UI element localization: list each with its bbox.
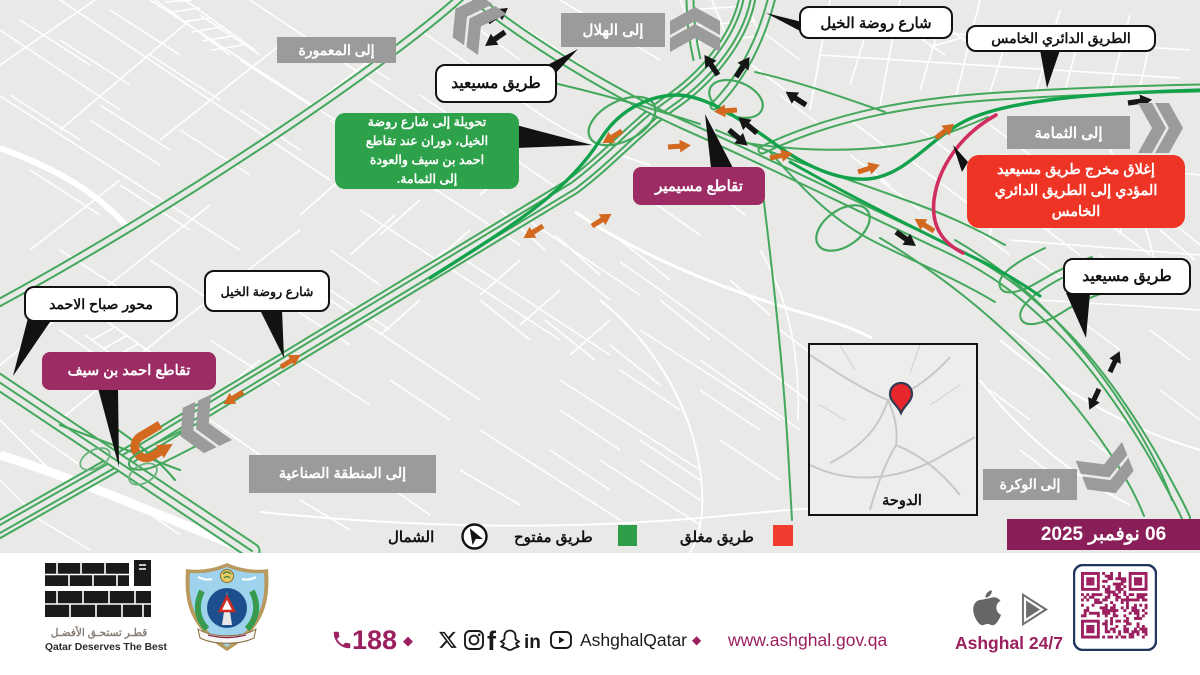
svg-text:f: f [487,628,497,653]
svg-text:قطـر تستحـق الأفضـل: قطـر تستحـق الأفضـل [51,625,147,639]
svg-text:in: in [524,632,541,653]
svg-text:الدوحة: الدوحة [882,493,922,509]
svg-text:Qatar Deserves The Best: Qatar Deserves The Best [45,642,167,653]
